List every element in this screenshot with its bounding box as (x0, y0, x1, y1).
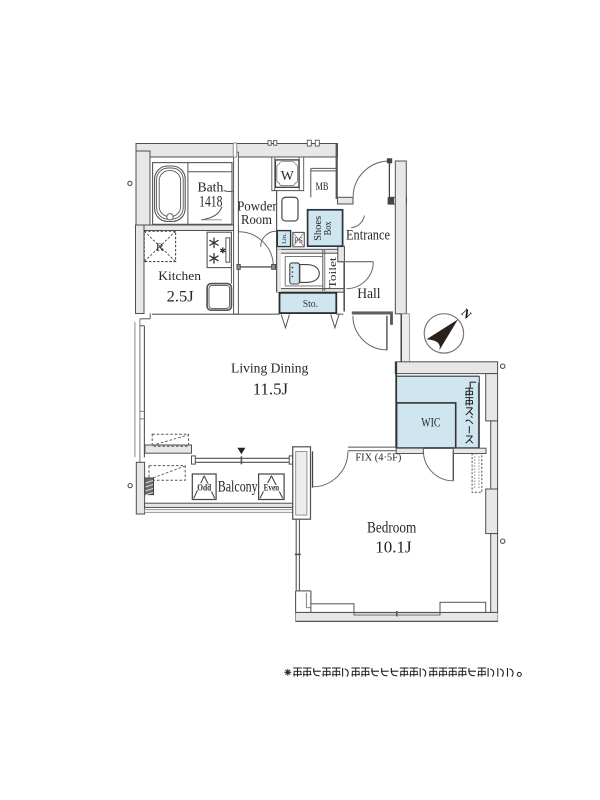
svg-text:Lin.: Lin. (281, 233, 288, 244)
svg-text:10.1J: 10.1J (375, 537, 412, 556)
svg-text:2.5J: 2.5J (167, 289, 194, 306)
svg-text:Kitchen: Kitchen (158, 269, 201, 283)
svg-text:Even: Even (264, 482, 280, 492)
svg-text:Entrance: Entrance (346, 228, 390, 244)
svg-text:PS: PS (294, 236, 303, 245)
svg-text:Toilet: Toilet (328, 257, 339, 288)
svg-text:1418: 1418 (199, 193, 222, 210)
svg-text:Balcony: Balcony (218, 478, 258, 495)
svg-text:FIX (4·5F): FIX (4·5F) (355, 452, 401, 464)
svg-text:Room: Room (241, 212, 272, 227)
svg-text:Sto.: Sto. (303, 299, 318, 310)
svg-text:Hall: Hall (357, 286, 380, 302)
svg-text:W: W (281, 169, 295, 184)
svg-text:Box: Box (323, 221, 334, 235)
svg-text:11.5J: 11.5J (253, 380, 289, 399)
svg-text:Living Dining: Living Dining (231, 362, 308, 377)
svg-text:Odd: Odd (197, 482, 211, 492)
svg-text:WIC: WIC (421, 415, 440, 430)
svg-text:Bedroom: Bedroom (367, 519, 417, 536)
svg-text:N: N (458, 306, 474, 322)
svg-text:MB: MB (316, 181, 329, 193)
svg-text:R: R (156, 240, 164, 254)
